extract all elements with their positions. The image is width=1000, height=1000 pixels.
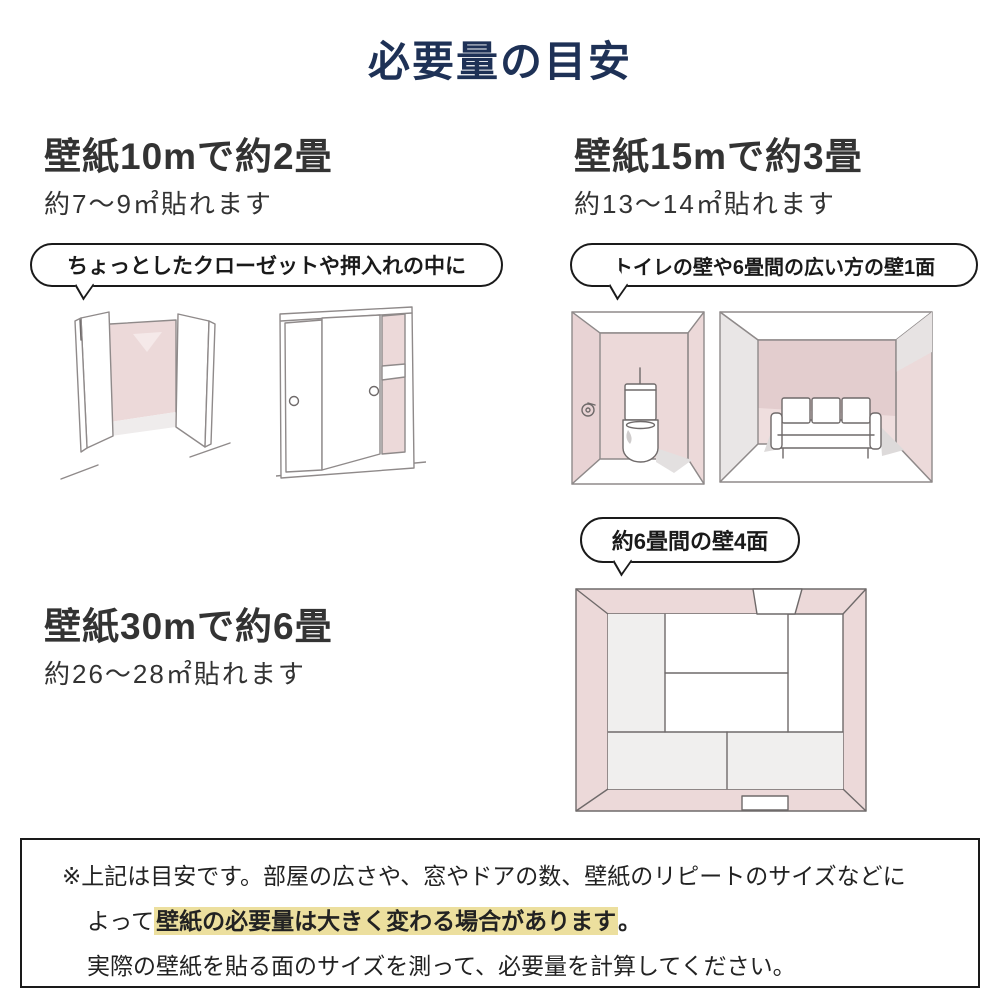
oshiire-sliding-closet-illustration (276, 302, 426, 487)
section-30m-heading: 壁紙30mで約6畳 (44, 596, 333, 650)
section-30m-subheading: 約26〜28㎡貼れます (44, 654, 306, 691)
sofa-room-one-wall-illustration (716, 308, 936, 486)
tatami-room-top-view-illustration (573, 586, 869, 814)
section-10m-bubble-label: ちょっとしたクローゼットや押入れの中に (67, 250, 466, 280)
note-line-2: よって壁紙の必要量は大きく変わる場合があります。 (87, 899, 958, 944)
toilet-room-illustration (568, 306, 708, 488)
section-15m-bubble-label: トイレの壁や6畳間の広い方の壁1面 (613, 251, 935, 280)
section-15m-heading: 壁紙15mで約3畳 (574, 126, 863, 180)
section-15m-bubble: トイレの壁や6畳間の広い方の壁1面 (570, 243, 978, 287)
note-line-2-prefix: よって (87, 908, 154, 934)
section-10m-bubble: ちょっとしたクローゼットや押入れの中に (30, 243, 503, 287)
note-highlighted-text: 壁紙の必要量は大きく変わる場合があります (154, 907, 618, 935)
note-box: ※上記は目安です。部屋の広さや、窓やドアの数、壁紙のリピートのサイズなどに よっ… (20, 838, 980, 988)
page-title: 必要量の目安 (0, 28, 1000, 89)
closet-open-doors-illustration (58, 296, 233, 491)
note-line-3: 実際の壁紙を貼る面のサイズを測って、必要量を計算してください。 (87, 944, 958, 989)
section-15m-subheading: 約13〜14㎡貼れます (574, 184, 836, 221)
note-line-2-suffix: 。 (618, 908, 641, 934)
section-10m-subheading: 約7〜9㎡貼れます (44, 184, 273, 221)
wallpaper-quantity-guide: 必要量の目安 壁紙10mで約2畳 約7〜9㎡貼れます ちょっとしたクローゼットや… (0, 0, 1000, 1000)
section-30m-bubble-label: 約6畳間の壁4面 (612, 524, 768, 556)
note-line-1: ※上記は目安です。部屋の広さや、窓やドアの数、壁紙のリピートのサイズなどに (62, 854, 958, 899)
section-30m-bubble: 約6畳間の壁4面 (580, 517, 800, 563)
section-10m-heading: 壁紙10mで約2畳 (44, 126, 333, 180)
